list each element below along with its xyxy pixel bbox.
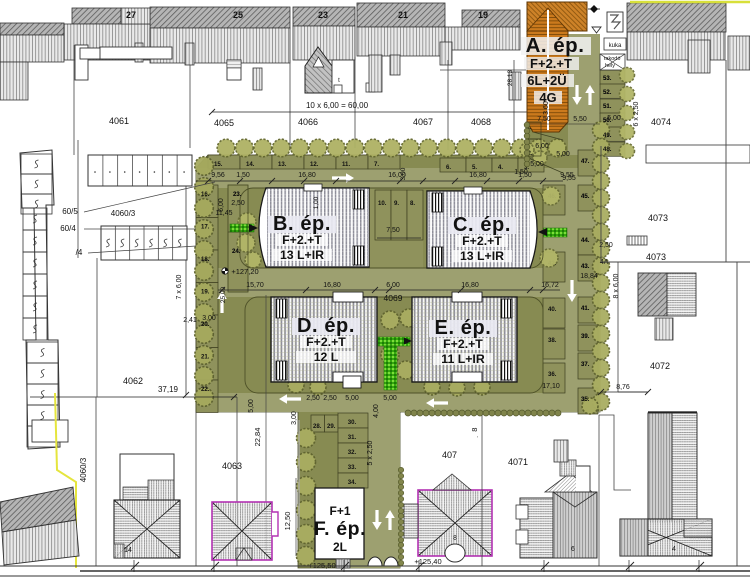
svg-text:3,00: 3,00 [291, 411, 298, 425]
svg-text:47.: 47. [581, 158, 590, 165]
svg-text:5 x 2,50: 5 x 2,50 [367, 440, 374, 465]
svg-text:16,80: 16,80 [323, 282, 341, 289]
svg-text:60/4: 60/4 [60, 224, 76, 233]
svg-text:4063: 4063 [222, 461, 242, 471]
svg-text:4069: 4069 [384, 293, 403, 303]
svg-text:13 L+IR: 13 L+IR [460, 249, 504, 263]
svg-text:4071: 4071 [508, 457, 528, 467]
svg-text:9,56: 9,56 [211, 172, 225, 179]
svg-text:4073: 4073 [648, 213, 668, 223]
svg-text:4062: 4062 [123, 376, 143, 386]
svg-text:4,00: 4,00 [373, 404, 380, 418]
svg-text:12.: 12. [310, 161, 319, 168]
svg-text:hely: hely [605, 63, 615, 69]
svg-text:14: 14 [124, 547, 132, 554]
svg-text:23: 23 [318, 10, 328, 20]
svg-text:44.: 44. [581, 237, 590, 244]
svg-text:51.: 51. [603, 103, 612, 110]
svg-text:30.: 30. [348, 419, 357, 426]
svg-text:12,50: 12,50 [283, 512, 292, 531]
svg-text:4: 4 [672, 546, 676, 553]
svg-text:22,84: 22,84 [253, 428, 262, 447]
svg-text:rakodó: rakodó [604, 56, 621, 62]
svg-text:28,13: 28,13 [507, 69, 514, 86]
svg-text:15,70: 15,70 [246, 282, 264, 289]
svg-text:7 x 6,00: 7 x 6,00 [176, 274, 183, 299]
svg-text:8 x 6,00: 8 x 6,00 [613, 273, 620, 298]
svg-text:32.: 32. [348, 449, 357, 456]
svg-text:4072: 4072 [650, 361, 670, 371]
svg-text:B. ép.: B. ép. [273, 213, 331, 235]
svg-text:7.: 7. [374, 161, 379, 168]
svg-text:C. ép.: C. ép. [453, 214, 511, 236]
svg-text:2,50: 2,50 [306, 395, 320, 402]
svg-text:15.: 15. [214, 161, 223, 168]
svg-text:10 x 6,00 = 60,00: 10 x 6,00 = 60,00 [306, 101, 369, 110]
svg-text:F. ép.: F. ép. [314, 518, 366, 540]
svg-text:4067: 4067 [413, 117, 433, 127]
svg-text:5,00: 5,00 [556, 151, 570, 158]
svg-text:35.: 35. [581, 396, 590, 403]
svg-text:4065: 4065 [214, 118, 234, 128]
svg-text:45.: 45. [581, 193, 590, 200]
svg-text:16,72: 16,72 [541, 282, 559, 289]
svg-text:21.: 21. [201, 354, 210, 361]
svg-text:4074: 4074 [651, 117, 671, 127]
svg-text:1,50: 1,50 [514, 169, 528, 176]
svg-text:3,60: 3,60 [543, 101, 550, 115]
svg-text:43.: 43. [581, 263, 590, 270]
svg-text:37,19: 37,19 [158, 385, 179, 394]
svg-text:/4: /4 [76, 248, 83, 257]
svg-text:11 L+IR: 11 L+IR [441, 352, 485, 366]
svg-text:21: 21 [398, 10, 408, 20]
svg-text:14.: 14. [246, 161, 255, 168]
svg-text:13.: 13. [278, 161, 287, 168]
svg-text:49.: 49. [603, 132, 612, 139]
svg-text:F+2.+T: F+2.+T [530, 56, 572, 71]
svg-text:16,80: 16,80 [469, 172, 487, 179]
svg-text:kuka: kuka [609, 43, 622, 49]
svg-text:10.: 10. [378, 200, 387, 207]
svg-text:27: 27 [126, 10, 136, 20]
svg-text:1,00: 1,00 [313, 196, 320, 209]
svg-text:F+2.+T: F+2.+T [282, 233, 322, 247]
svg-text:9.: 9. [394, 200, 399, 207]
svg-text:16,80: 16,80 [298, 172, 316, 179]
svg-text:23.: 23. [233, 191, 242, 198]
svg-text:38.: 38. [548, 337, 557, 344]
svg-text:13 L+IR: 13 L+IR [280, 248, 324, 262]
svg-text:F+2.+T: F+2.+T [462, 234, 502, 248]
svg-text:4060/3: 4060/3 [111, 209, 136, 218]
svg-text:1,50: 1,50 [236, 172, 250, 179]
svg-text:37.: 37. [581, 361, 590, 368]
svg-text:3,00: 3,00 [400, 167, 407, 180]
svg-text:8.: 8. [410, 200, 415, 207]
svg-text:8: 8 [453, 535, 457, 542]
svg-text:20.: 20. [201, 321, 210, 328]
svg-text:3,00: 3,00 [202, 315, 216, 322]
svg-text:12 L: 12 L [314, 350, 339, 364]
svg-text:+127,20: +127,20 [231, 267, 258, 276]
svg-text:16.: 16. [201, 191, 210, 198]
svg-text:2,41: 2,41 [183, 317, 197, 324]
svg-text:2,50: 2,50 [231, 200, 245, 207]
svg-text:17.: 17. [201, 224, 210, 231]
svg-text:39.: 39. [581, 333, 590, 340]
svg-text:28.: 28. [313, 423, 322, 430]
svg-text:5,00: 5,00 [248, 399, 255, 413]
svg-text:48.: 48. [603, 146, 612, 153]
svg-text:34.: 34. [348, 479, 357, 486]
svg-text:A. ép.: A. ép. [526, 34, 585, 57]
svg-text:E. ép.: E. ép. [435, 317, 492, 339]
svg-text:4073: 4073 [646, 252, 666, 262]
svg-text:7,50: 7,50 [386, 227, 400, 234]
svg-text:2L: 2L [333, 540, 347, 554]
svg-text:F+2.+T: F+2.+T [306, 335, 346, 349]
svg-text:D. ép.: D. ép. [297, 315, 355, 337]
svg-text:52.: 52. [603, 89, 612, 96]
svg-text:5,50: 5,50 [573, 116, 587, 123]
svg-text:11.: 11. [342, 161, 350, 168]
svg-text:29.: 29. [327, 423, 336, 430]
svg-text:36.: 36. [548, 371, 557, 378]
svg-text:6: 6 [571, 546, 575, 553]
svg-text:+125,40: +125,40 [414, 557, 441, 566]
svg-text:6,00: 6,00 [535, 143, 549, 150]
svg-text:31.: 31. [348, 434, 357, 441]
svg-text:5,00: 5,00 [345, 395, 359, 402]
svg-text:F+1: F+1 [329, 504, 350, 518]
svg-text:60/5: 60/5 [62, 207, 78, 216]
svg-text:4.: 4. [498, 164, 503, 171]
svg-text:24.: 24. [232, 248, 241, 255]
svg-text:5.: 5. [472, 164, 477, 171]
svg-text:7,50: 7,50 [537, 116, 551, 123]
svg-text:5,00: 5,00 [607, 115, 621, 122]
svg-text:22.: 22. [201, 386, 210, 393]
svg-text:33.: 33. [348, 464, 357, 471]
svg-text:18.: 18. [201, 256, 210, 263]
svg-text:4068: 4068 [471, 117, 491, 127]
svg-text:6 x 2,50: 6 x 2,50 [633, 101, 640, 126]
svg-text:9,55: 9,55 [562, 175, 576, 182]
svg-text:11,45: 11,45 [216, 210, 233, 217]
svg-text:18,84: 18,84 [580, 273, 598, 280]
svg-text:4060/3: 4060/3 [79, 457, 88, 482]
svg-text:4066: 4066 [298, 117, 318, 127]
svg-text:25: 25 [233, 10, 243, 20]
svg-text:19: 19 [478, 10, 488, 20]
svg-text:6.: 6. [446, 164, 451, 171]
svg-text:5,00: 5,00 [530, 161, 544, 168]
svg-text:6,00: 6,00 [386, 282, 400, 289]
svg-text:6L+2Ü: 6L+2Ü [527, 73, 566, 88]
svg-text:2,50: 2,50 [323, 395, 337, 402]
svg-text:4061: 4061 [109, 116, 129, 126]
svg-text:40.: 40. [548, 306, 557, 313]
svg-text:41.: 41. [581, 305, 590, 312]
svg-text:F+2.+T: F+2.+T [443, 337, 483, 351]
svg-text:19.: 19. [201, 289, 210, 296]
svg-text:17,10: 17,10 [542, 383, 560, 390]
svg-text:16,80: 16,80 [461, 282, 479, 289]
svg-text:5,00: 5,00 [383, 395, 397, 402]
svg-text:53.: 53. [603, 75, 612, 82]
